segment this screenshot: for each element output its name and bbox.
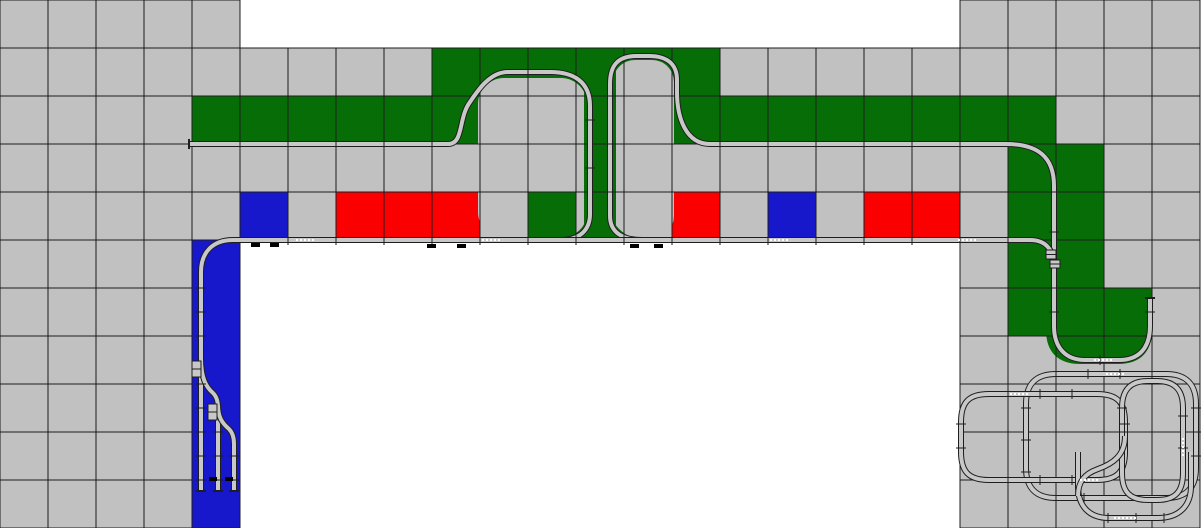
board-cell[interactable] xyxy=(1104,0,1152,48)
board-cell[interactable] xyxy=(240,144,288,192)
board-cell[interactable] xyxy=(192,0,240,48)
board-cell[interactable] xyxy=(48,336,96,384)
board-cell[interactable] xyxy=(912,96,960,144)
board-cell[interactable] xyxy=(1152,96,1200,144)
board-cell[interactable] xyxy=(672,192,720,240)
board-cell[interactable] xyxy=(432,192,480,240)
board-cell[interactable] xyxy=(0,144,48,192)
board-cell[interactable] xyxy=(0,288,48,336)
board-cell[interactable] xyxy=(960,240,1008,288)
board-cell[interactable] xyxy=(672,144,720,192)
board-cell[interactable] xyxy=(96,192,144,240)
board-cell[interactable] xyxy=(144,480,192,528)
board-cell[interactable] xyxy=(48,0,96,48)
board-cell[interactable] xyxy=(288,192,336,240)
board-cell[interactable] xyxy=(384,192,432,240)
track-plan-app xyxy=(0,0,1201,528)
board-cell[interactable] xyxy=(816,192,864,240)
board-cell[interactable] xyxy=(720,192,768,240)
board-cell[interactable] xyxy=(336,192,384,240)
board-cell[interactable] xyxy=(1152,0,1200,48)
board-cell[interactable] xyxy=(816,96,864,144)
uncoupler-mark xyxy=(654,244,663,248)
layout-canvas[interactable] xyxy=(0,0,1201,528)
uncoupler-mark xyxy=(251,243,260,247)
board-cell[interactable] xyxy=(192,192,240,240)
board-cell[interactable] xyxy=(96,288,144,336)
board-cell[interactable] xyxy=(720,144,768,192)
board-cell[interactable] xyxy=(144,240,192,288)
board-cell[interactable] xyxy=(144,288,192,336)
board-cell[interactable] xyxy=(720,96,768,144)
board-cell[interactable] xyxy=(0,48,48,96)
uncoupler-mark xyxy=(209,477,217,481)
board-cell[interactable] xyxy=(912,192,960,240)
board-cell[interactable] xyxy=(1152,144,1200,192)
green-pad-cell xyxy=(528,192,576,240)
uncoupler-mark xyxy=(427,244,436,248)
board-cell[interactable] xyxy=(1056,144,1104,192)
board-cell[interactable] xyxy=(96,384,144,432)
board-cell[interactable] xyxy=(864,192,912,240)
board-cell[interactable] xyxy=(144,336,192,384)
board-cell[interactable] xyxy=(960,96,1008,144)
board-cell[interactable] xyxy=(1152,48,1200,96)
board-cell[interactable] xyxy=(96,96,144,144)
board-cell[interactable] xyxy=(432,144,480,192)
right-loop-interior xyxy=(613,60,674,238)
board-cell[interactable] xyxy=(0,240,48,288)
board-cell[interactable] xyxy=(1056,0,1104,48)
uncoupler-mark xyxy=(270,243,279,247)
board-cell[interactable] xyxy=(432,48,480,96)
board-cell[interactable] xyxy=(240,96,288,144)
board-cell[interactable] xyxy=(864,96,912,144)
board-cell[interactable] xyxy=(720,48,768,96)
board-cell[interactable] xyxy=(192,96,240,144)
board-cell[interactable] xyxy=(1104,240,1152,288)
board-cell[interactable] xyxy=(1008,96,1056,144)
board-cell[interactable] xyxy=(1008,0,1056,48)
board-cell[interactable] xyxy=(144,384,192,432)
board-cell[interactable] xyxy=(96,336,144,384)
board-cell[interactable] xyxy=(1104,192,1152,240)
board-cell[interactable] xyxy=(864,144,912,192)
board-cell[interactable] xyxy=(48,288,96,336)
board-cell[interactable] xyxy=(288,48,336,96)
uncoupler-mark xyxy=(630,244,639,248)
board-cell[interactable] xyxy=(144,192,192,240)
board-cell[interactable] xyxy=(288,144,336,192)
turnout-icon[interactable] xyxy=(208,404,217,420)
board-cell[interactable] xyxy=(1152,192,1200,240)
board-cell[interactable] xyxy=(768,48,816,96)
board-cell[interactable] xyxy=(48,480,96,528)
board-cell[interactable] xyxy=(336,48,384,96)
board-cell[interactable] xyxy=(960,0,1008,48)
board-cell[interactable] xyxy=(96,432,144,480)
board-cell[interactable] xyxy=(48,192,96,240)
board-cell[interactable] xyxy=(960,48,1008,96)
board-cell[interactable] xyxy=(768,192,816,240)
board-cell[interactable] xyxy=(0,96,48,144)
board-cell[interactable] xyxy=(0,432,48,480)
board-cell[interactable] xyxy=(48,96,96,144)
board-cell[interactable] xyxy=(1008,48,1056,96)
board-cell[interactable] xyxy=(1008,432,1056,480)
board-cell[interactable] xyxy=(768,96,816,144)
board-cell[interactable] xyxy=(144,0,192,48)
board-cell[interactable] xyxy=(384,144,432,192)
uncoupler-mark xyxy=(225,477,233,481)
board-cell[interactable] xyxy=(0,0,48,48)
board-cell[interactable] xyxy=(144,144,192,192)
turnout-icon[interactable] xyxy=(1050,260,1060,268)
board-cell[interactable] xyxy=(96,0,144,48)
turnout-icon[interactable] xyxy=(192,361,201,377)
board-cell[interactable] xyxy=(912,144,960,192)
board-cell[interactable] xyxy=(48,144,96,192)
turnout-icon[interactable] xyxy=(1046,250,1056,259)
board-cell[interactable] xyxy=(96,480,144,528)
board-cell[interactable] xyxy=(144,96,192,144)
board-cell[interactable] xyxy=(96,48,144,96)
board-cell[interactable] xyxy=(384,96,432,144)
board-cell[interactable] xyxy=(960,480,1008,528)
board-cell[interactable] xyxy=(1056,96,1104,144)
board-cell[interactable] xyxy=(192,144,240,192)
board-cell[interactable] xyxy=(48,384,96,432)
board-cell[interactable] xyxy=(1008,192,1056,240)
board-cell[interactable] xyxy=(864,48,912,96)
board-cell[interactable] xyxy=(1104,48,1152,96)
board-cell[interactable] xyxy=(0,480,48,528)
board-cell[interactable] xyxy=(960,336,1008,384)
board-cell[interactable] xyxy=(48,240,96,288)
board-cell[interactable] xyxy=(1152,288,1200,336)
board-cell[interactable] xyxy=(240,192,288,240)
board-cell[interactable] xyxy=(816,48,864,96)
board-cell[interactable] xyxy=(96,144,144,192)
board-cell[interactable] xyxy=(960,144,1008,192)
board-cell[interactable] xyxy=(1104,144,1152,192)
board-cell[interactable] xyxy=(0,336,48,384)
board-cell[interactable] xyxy=(816,144,864,192)
board-cell[interactable] xyxy=(48,48,96,96)
board-cell[interactable] xyxy=(960,288,1008,336)
board-cell[interactable] xyxy=(1104,96,1152,144)
board-cell[interactable] xyxy=(288,96,336,144)
board-cell[interactable] xyxy=(768,144,816,192)
board-cell[interactable] xyxy=(48,432,96,480)
board-cell[interactable] xyxy=(0,384,48,432)
board-cell[interactable] xyxy=(192,48,240,96)
board-cell[interactable] xyxy=(1056,48,1104,96)
board-cell[interactable] xyxy=(1152,240,1200,288)
board-cell[interactable] xyxy=(960,192,1008,240)
board-cell[interactable] xyxy=(1056,192,1104,240)
board-cell[interactable] xyxy=(1056,240,1104,288)
board-cell[interactable] xyxy=(144,432,192,480)
board-cell[interactable] xyxy=(336,96,384,144)
board-cell[interactable] xyxy=(912,48,960,96)
board-cell[interactable] xyxy=(0,192,48,240)
uncoupler-mark xyxy=(457,244,466,248)
board-cell[interactable] xyxy=(96,240,144,288)
board-cell[interactable] xyxy=(336,144,384,192)
board-cell[interactable] xyxy=(144,48,192,96)
board-cell[interactable] xyxy=(384,48,432,96)
board-cell[interactable] xyxy=(240,48,288,96)
